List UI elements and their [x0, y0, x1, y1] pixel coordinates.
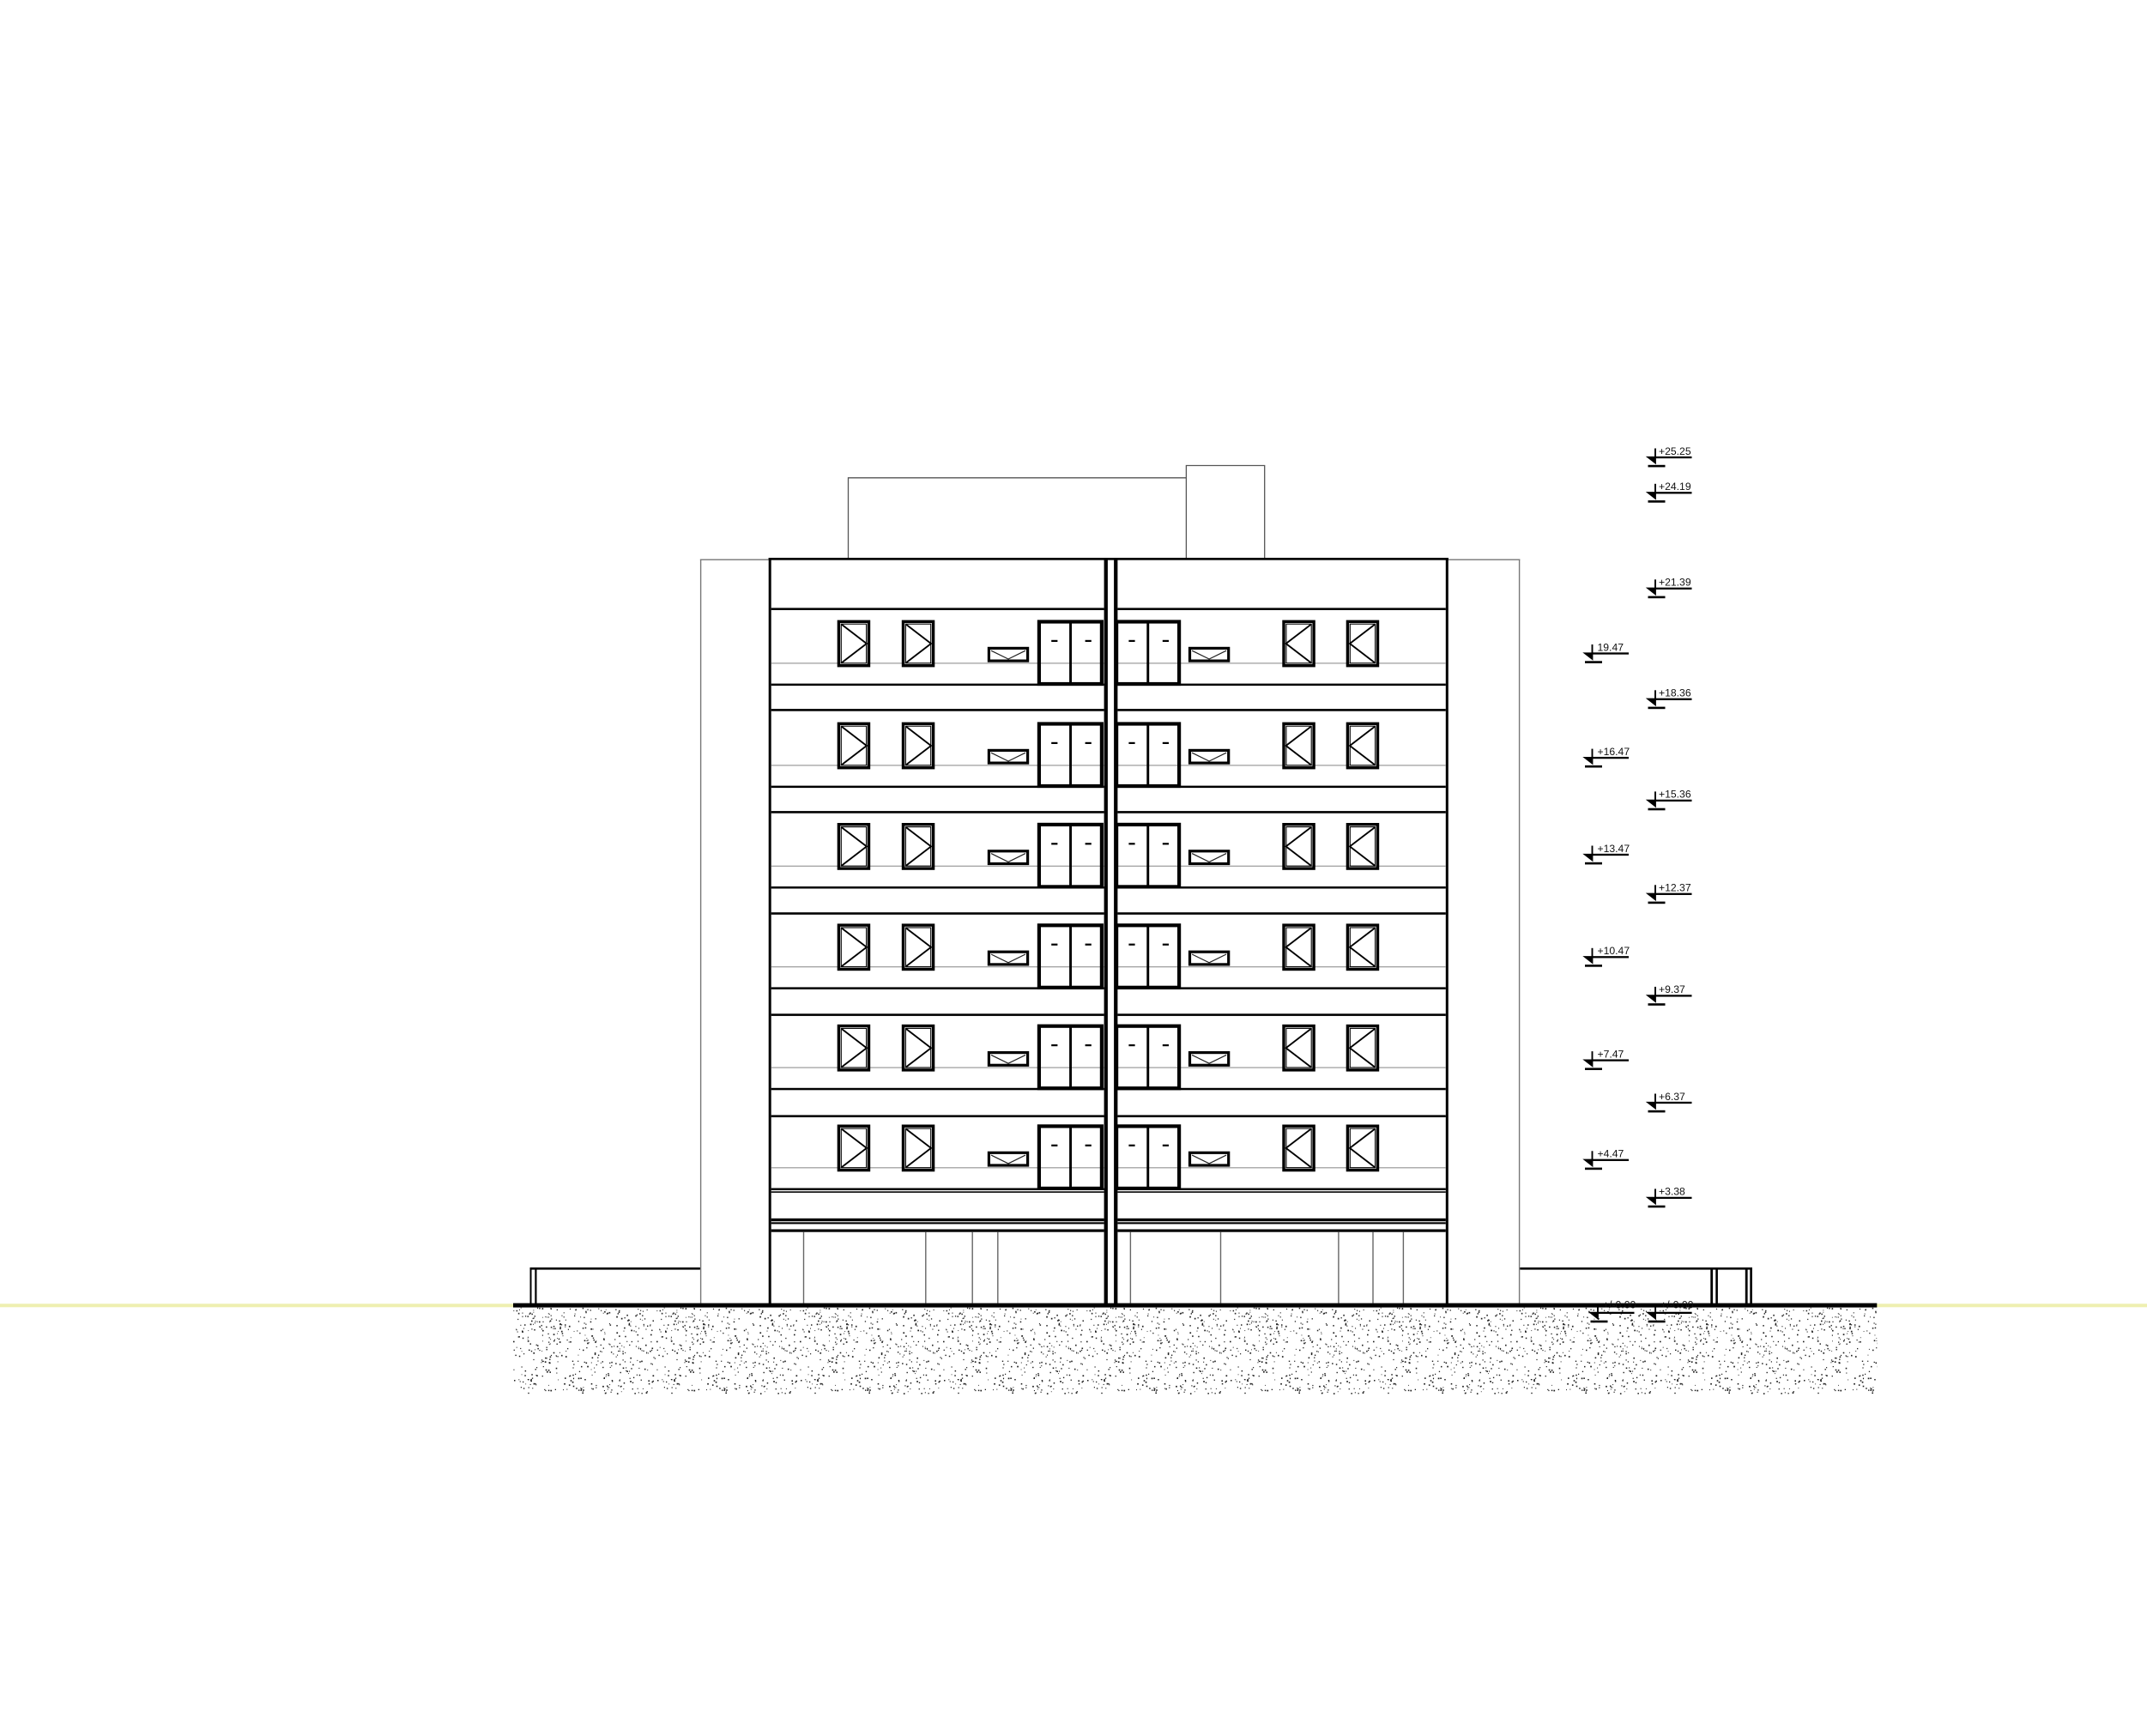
svg-text:+10.47: +10.47: [1598, 945, 1630, 957]
svg-text:+18.36: +18.36: [1659, 687, 1691, 699]
svg-text:+15.36: +15.36: [1659, 789, 1691, 801]
svg-text:+/-0.00: +/-0.00: [1603, 1299, 1636, 1311]
svg-text:+9.37: +9.37: [1659, 983, 1685, 995]
svg-text:+13.47: +13.47: [1598, 843, 1630, 855]
svg-text:+25.25: +25.25: [1659, 445, 1691, 457]
svg-text:+/-0.00: +/-0.00: [1660, 1299, 1694, 1311]
svg-text:+6.37: +6.37: [1659, 1091, 1685, 1103]
svg-text:+21.39: +21.39: [1659, 577, 1691, 589]
svg-text:+16.47: +16.47: [1598, 746, 1630, 758]
svg-text:+3.38: +3.38: [1659, 1186, 1685, 1198]
svg-text:+4.47: +4.47: [1598, 1148, 1624, 1160]
svg-text:19.47: 19.47: [1598, 641, 1624, 653]
svg-text:+24.19: +24.19: [1659, 481, 1691, 493]
svg-text:+12.37: +12.37: [1659, 882, 1691, 894]
svg-text:+7.47: +7.47: [1598, 1048, 1624, 1060]
